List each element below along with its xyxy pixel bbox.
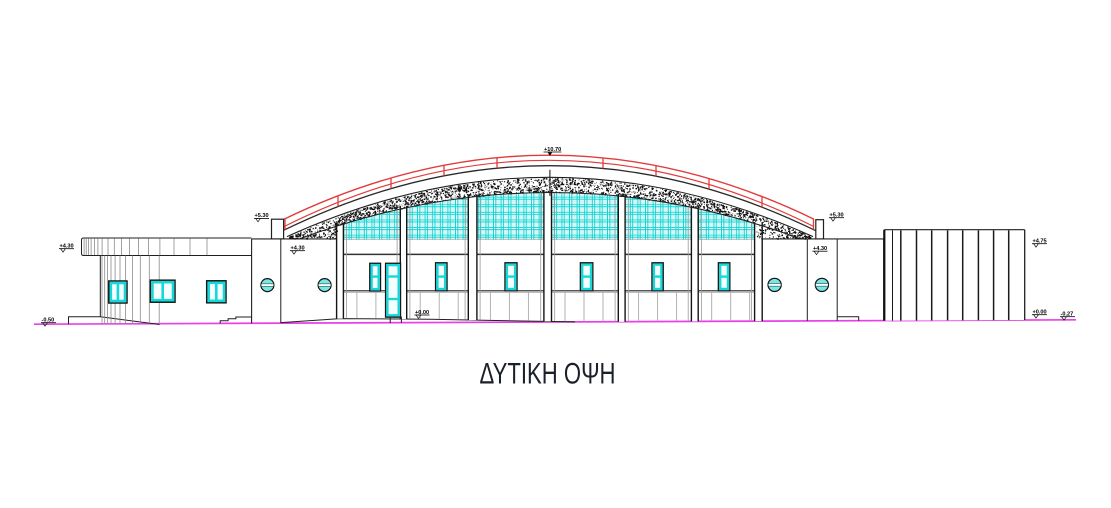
svg-text:ΔΥΤΙΚΗ ΟΨΗ: ΔΥΤΙΚΗ ΟΨΗ xyxy=(480,357,616,390)
